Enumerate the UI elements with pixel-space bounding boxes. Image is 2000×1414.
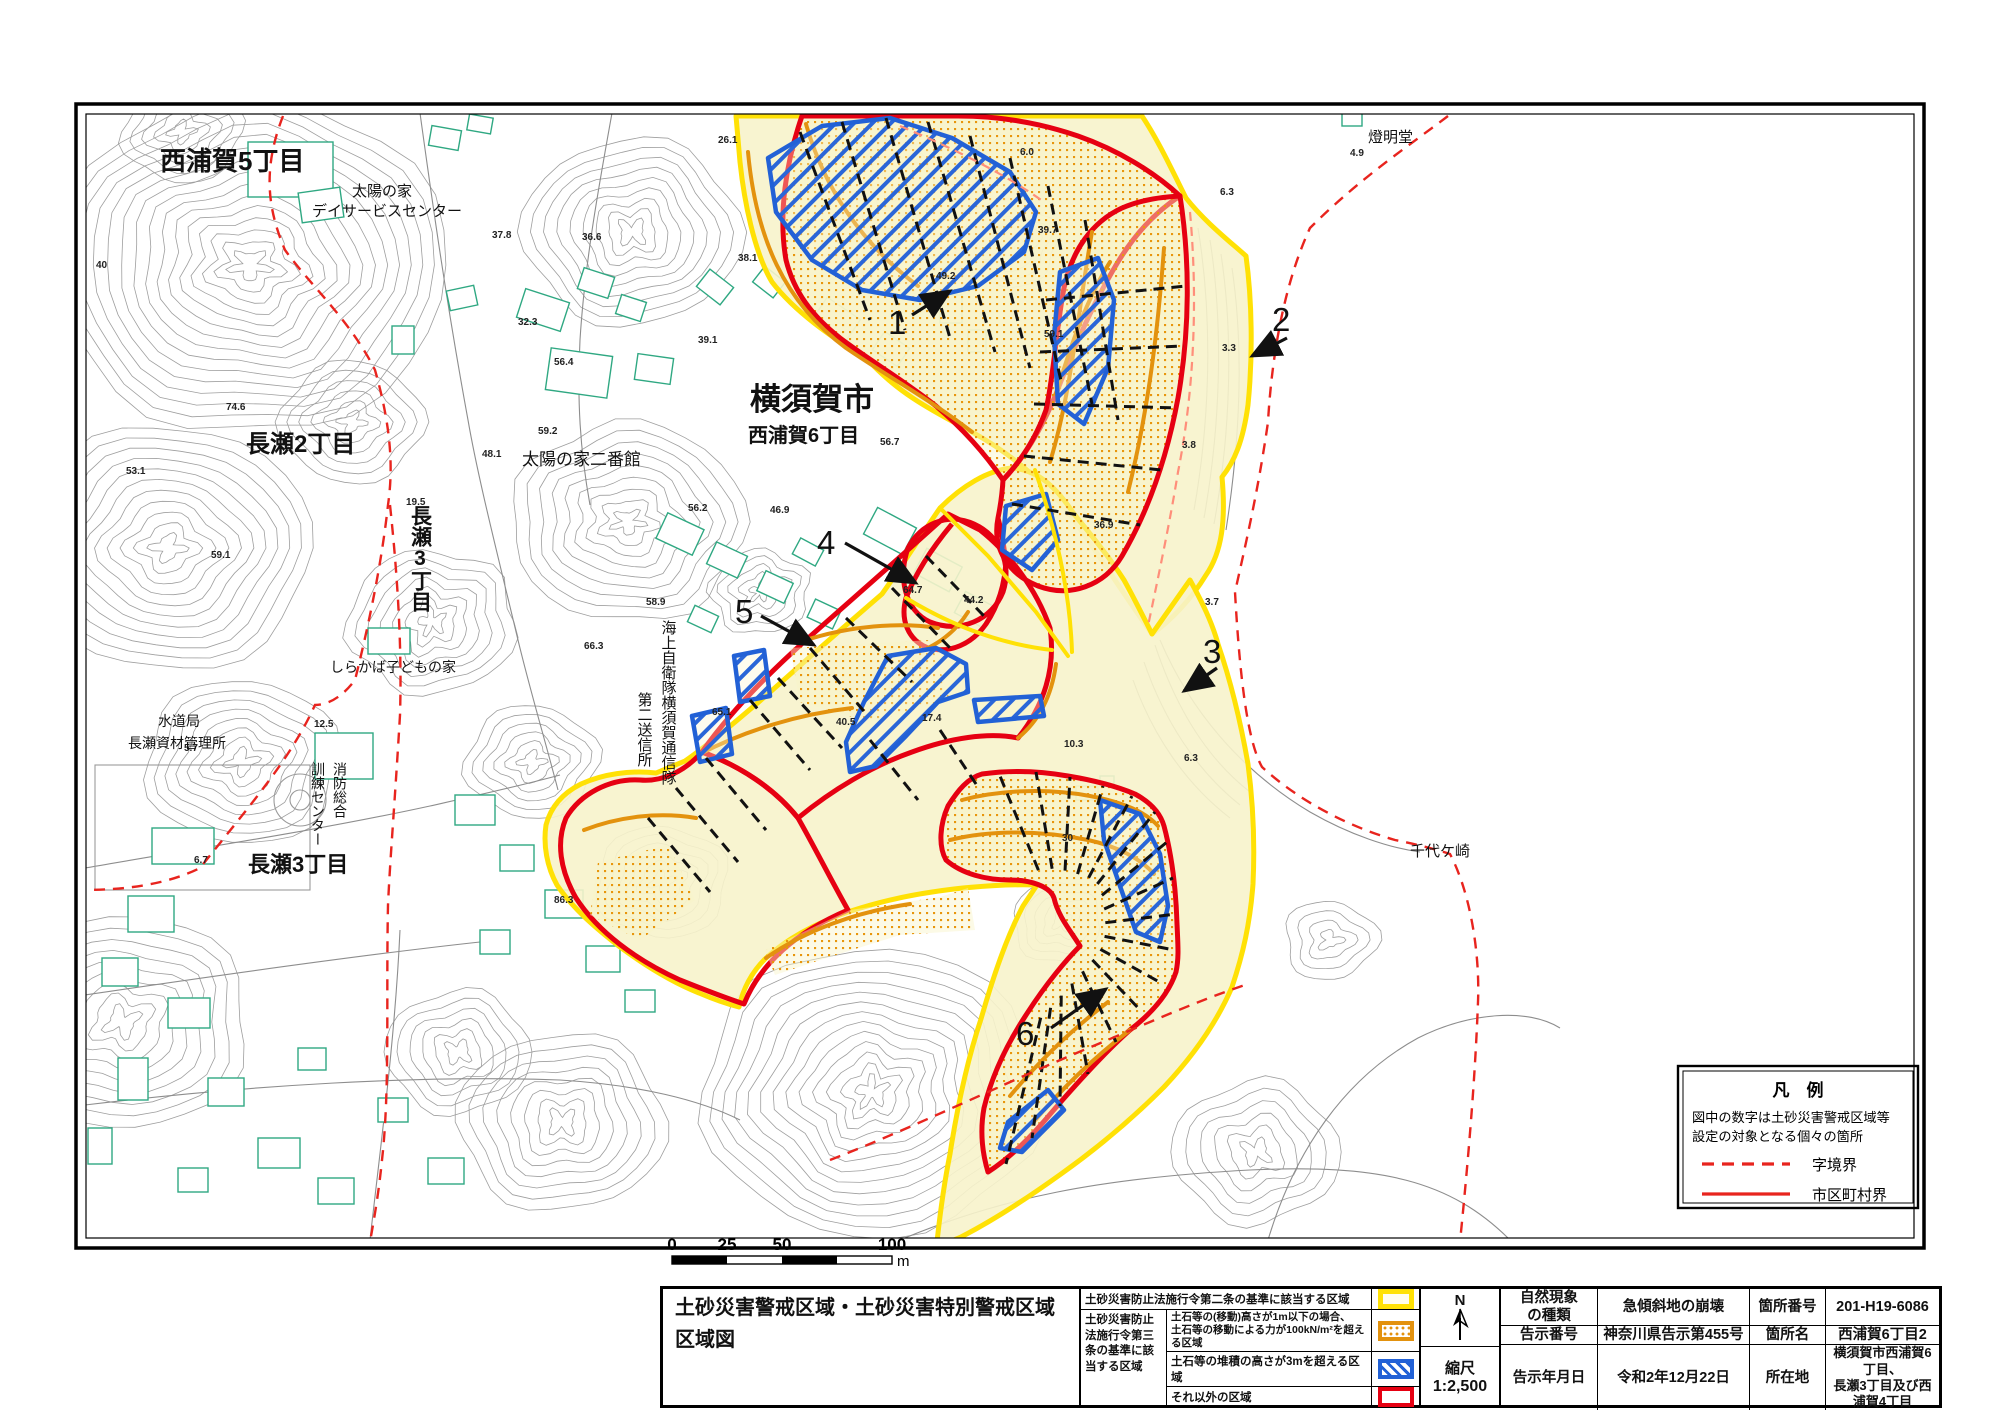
scale-label: 縮尺: [1445, 1357, 1475, 1378]
swatch-orange-cell: [1371, 1309, 1419, 1351]
spot-elevation: 39.1: [698, 335, 718, 346]
scale-unit: m: [897, 1253, 910, 1270]
spot-elevation: 26.1: [718, 135, 738, 146]
place-label: 長瀬資材管理所: [128, 735, 226, 751]
site-number: 1: [888, 304, 906, 341]
site-value: 横須賀市西浦賀6丁目、長瀬3丁目及び西浦賀4丁目: [1825, 1344, 1939, 1410]
place-label: デイサービスセンター: [312, 202, 462, 220]
site-number: 5: [735, 593, 753, 630]
info-table: 土砂災害警戒区域・土砂災害特別警戒区域 区域図 土砂災害防止法施行令第二条の基準…: [660, 1286, 1942, 1408]
scale-value: 1:2,500: [1433, 1378, 1487, 1396]
scale-tick-50: 50: [773, 1235, 792, 1254]
notice-value: 令和2年12月22日: [1597, 1344, 1749, 1410]
article3-group-label: 土砂災害防止法施行令第三条の基準に該当する区域: [1081, 1309, 1167, 1407]
scale-tick-0: 0: [667, 1235, 676, 1254]
place-label-vertical: 長瀬3丁目: [409, 505, 433, 612]
spot-elevation: 40.5: [836, 717, 856, 728]
spot-elevation: 44.2: [964, 595, 984, 606]
article3-row3-label: それ以外の区域: [1167, 1386, 1371, 1407]
spot-elevation: 30: [1062, 833, 1074, 844]
site-header: 所在地: [1749, 1344, 1825, 1410]
spot-elevation: 56.2: [688, 503, 708, 514]
compass-letter: N: [1455, 1293, 1466, 1308]
yellow-zone-swatch: [1378, 1289, 1414, 1309]
spot-elevation: 17.4: [922, 713, 942, 724]
place-label: 西浦賀6丁目: [748, 423, 859, 447]
spot-elevation: 59.2: [538, 426, 558, 437]
spot-elevation: 3.7: [1205, 597, 1219, 608]
legend-title: 凡 例: [1773, 1080, 1824, 1100]
article3-row1-line1: 土石等の(移動)高さが1m以下の場合、: [1171, 1311, 1351, 1323]
place-label-vertical: 訓練センター: [310, 762, 326, 846]
scale-cell: 縮尺 1:2,500: [1421, 1347, 1499, 1405]
notice-header: 告示年月日: [1501, 1344, 1597, 1410]
article2-label: 土砂災害防止法施行令第二条の基準に該当する区域: [1081, 1289, 1371, 1309]
place-label: 太陽の家二番館: [522, 450, 641, 469]
place-label: 長瀬2丁目: [246, 431, 355, 458]
spot-elevation: 3.3: [1222, 343, 1236, 354]
site-number: 6: [1016, 1015, 1034, 1052]
spot-elevation: 6.3: [1220, 187, 1234, 198]
hazard-map-sheet: 土砂災害警戒区域等指定図(その2)(2／2): [0, 0, 2000, 1414]
spot-elevation: 74.6: [226, 402, 246, 413]
spot-elevation: 10.3: [1064, 739, 1084, 750]
spot-elevation: 86.3: [554, 895, 574, 906]
spot-elevation: 56.4: [554, 357, 574, 368]
spot-elevation: 6.7: [194, 855, 208, 866]
spot-elevation: 65.1: [712, 707, 732, 718]
place-label-vertical: 第二送信所: [636, 691, 653, 767]
place-label: 長瀬3丁目: [248, 852, 348, 877]
spot-elevation: 6.3: [1184, 753, 1198, 764]
place-label-vertical: 消防総合: [332, 762, 348, 818]
swatch-red-cell: [1371, 1386, 1419, 1407]
spot-elevation: 39.7: [1038, 225, 1058, 236]
swatch-blue-cell: [1371, 1351, 1419, 1386]
spot-elevation: 53.1: [126, 466, 146, 477]
legend-note-1: 図中の数字は土砂災害警戒区域等: [1692, 1109, 1890, 1125]
place-label: 西浦賀5丁目: [160, 146, 304, 176]
article3-row1-line2: 土石等の移動による力が100kN/m²を超える区域: [1171, 1324, 1364, 1349]
sheet-title-line2: 区域図: [675, 1323, 1067, 1352]
place-label-vertical: 海上自衛隊横須賀通信隊: [660, 620, 677, 786]
north-arrow-icon: [1447, 1308, 1473, 1342]
sheet-title-line1: 土砂災害警戒区域・土砂災害特別警戒区域: [675, 1294, 1067, 1323]
scale-tick-25: 25: [718, 1235, 737, 1254]
blue-zone-swatch: [1378, 1359, 1414, 1379]
place-label: 水道局: [158, 713, 200, 729]
site-value: 西浦賀6丁目2: [1825, 1325, 1939, 1344]
spot-elevation: 49.2: [936, 271, 956, 282]
notice-value: 神奈川県告示第455号: [1597, 1325, 1749, 1344]
spot-elevation: 40: [96, 260, 108, 271]
spot-elevation: 12.5: [314, 719, 334, 730]
site-number: 2: [1272, 301, 1290, 338]
spot-elevation: 38.1: [738, 253, 758, 264]
sheet-title-cell: 土砂災害警戒区域・土砂災害特別警戒区域 区域図: [663, 1289, 1081, 1405]
spot-elevation: 6.0: [1020, 147, 1034, 158]
article3-row1-label: 土石等の(移動)高さが1m以下の場合、 土石等の移動による力が100kN/m²を…: [1167, 1309, 1371, 1351]
site-number: 3: [1203, 633, 1221, 670]
orange-zone-swatch: [1378, 1321, 1414, 1341]
spot-elevation: 46.9: [770, 505, 790, 516]
spot-elevation: 64.7: [903, 585, 923, 596]
place-label: 太陽の家: [352, 183, 412, 200]
site-header: 箇所名: [1749, 1325, 1825, 1344]
site-number: 4: [817, 524, 835, 561]
notice-info-table: 自然現象の種類急傾斜地の崩壊箇所番号201-H19-6086告示番号神奈川県告示…: [1501, 1289, 1939, 1405]
place-label: しらかば子どもの家: [330, 659, 456, 675]
red-zone-swatch: [1378, 1387, 1414, 1407]
spot-elevation: 36.6: [582, 232, 602, 243]
notice-header: 自然現象の種類: [1501, 1289, 1597, 1325]
site-header: 箇所番号: [1749, 1289, 1825, 1325]
legend-note-2: 設定の対象となる個々の箇所: [1692, 1128, 1863, 1144]
compass-cell: N: [1421, 1289, 1499, 1347]
legend-solid-label: 市区町村界: [1812, 1187, 1887, 1204]
spot-elevation: 58.9: [646, 597, 666, 608]
place-label: 燈明堂: [1368, 129, 1413, 146]
map-canvas: 4074.653.159.119.537.836.632.356.459.248…: [0, 0, 2000, 1414]
spot-elevation: 3.8: [1182, 440, 1196, 451]
site-value: 201-H19-6086: [1825, 1289, 1939, 1325]
legend-box: 凡 例 図中の数字は土砂災害警戒区域等 設定の対象となる個々の箇所 字境界 市区…: [1678, 1066, 1918, 1208]
spot-elevation: 48.1: [482, 449, 502, 460]
spot-elevation: 37.8: [492, 230, 512, 241]
scale-tick-100: 100: [878, 1235, 906, 1254]
place-label: 横須賀市: [750, 382, 874, 417]
spot-elevation: 36.9: [1094, 520, 1114, 531]
spot-elevation: 32.3: [518, 317, 538, 328]
swatch-yellow-cell: [1371, 1289, 1419, 1309]
spot-elevation: 4.9: [1350, 148, 1364, 159]
notice-value: 急傾斜地の崩壊: [1597, 1289, 1749, 1325]
spot-elevation: 56.7: [880, 437, 900, 448]
spot-elevation: 59.1: [211, 550, 231, 561]
spot-elevation: 66.3: [584, 641, 604, 652]
place-label: 千代ケ崎: [1410, 843, 1470, 860]
spot-elevation: 59.1: [1044, 329, 1064, 340]
notice-header: 告示番号: [1501, 1325, 1597, 1344]
legend-dashed-label: 字境界: [1812, 1156, 1857, 1174]
article3-row2-label: 土石等の堆積の高さが3mを超える区域: [1167, 1351, 1371, 1386]
zone-legend-table: 土砂災害防止法施行令第二条の基準に該当する区域 土砂災害防止法施行令第三条の基準…: [1081, 1289, 1421, 1405]
compass-scale-cell: N 縮尺 1:2,500: [1421, 1289, 1501, 1405]
